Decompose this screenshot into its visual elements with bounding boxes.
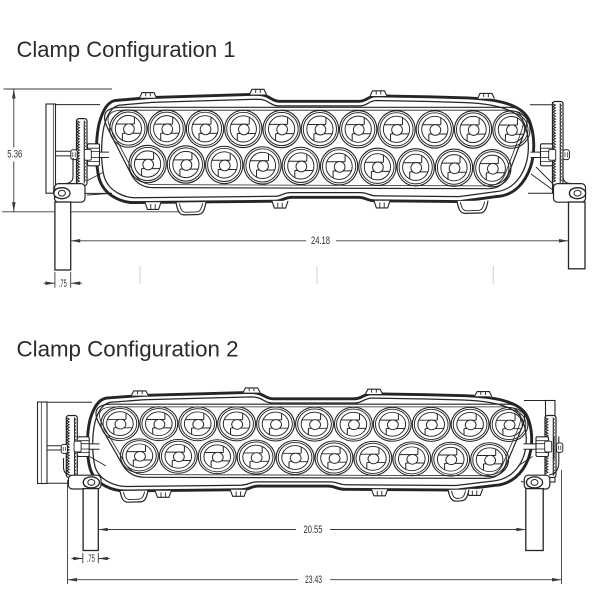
svg-text:.75: .75 bbox=[87, 553, 95, 565]
svg-text:.75: .75 bbox=[59, 278, 67, 290]
svg-text:5.36: 5.36 bbox=[7, 149, 22, 161]
svg-text:20.55: 20.55 bbox=[304, 524, 323, 536]
svg-text:Clamp Configuration 2: Clamp Configuration 2 bbox=[17, 336, 239, 361]
svg-text:Clamp Configuration 1: Clamp Configuration 1 bbox=[17, 37, 236, 62]
svg-text:23.43: 23.43 bbox=[305, 574, 322, 586]
svg-text:24.18: 24.18 bbox=[311, 235, 330, 247]
